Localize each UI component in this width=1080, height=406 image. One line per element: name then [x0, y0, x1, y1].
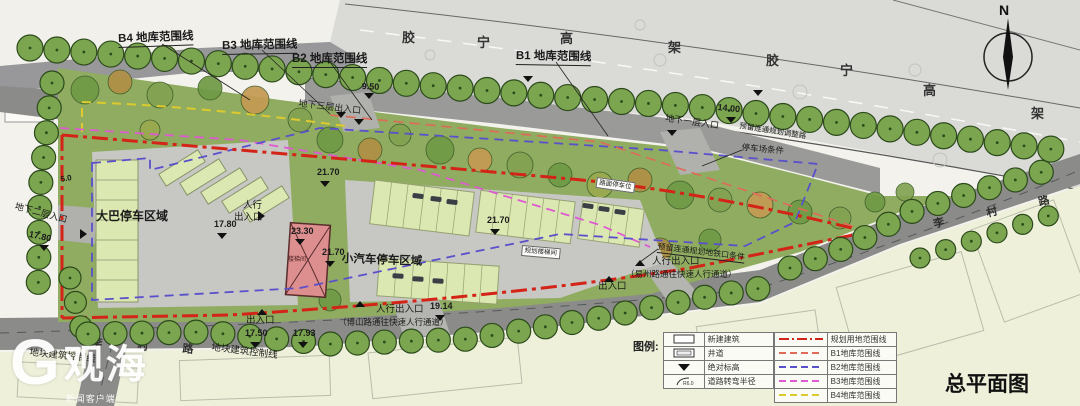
site-plan-page: 李村路李村路 胶宁高架胶宁高架 B4 地库范围线B3 地库范围线B2 地库范围线…	[0, 0, 1080, 406]
watermark-logo: G	[10, 332, 60, 393]
legend-line-row-3: B3地库范围线	[774, 375, 896, 389]
legend-line-sample-icon	[778, 350, 824, 356]
legend-line-row-2: B2地库范围线	[774, 361, 896, 375]
legend-line-label: 规划用地范围线	[827, 333, 896, 347]
watermark: G 观海 新闻客户端	[10, 332, 148, 405]
label-exit-left: 出入口	[246, 316, 275, 326]
label-elev-950: 9.50	[362, 82, 380, 92]
legend-line-sample-icon	[778, 392, 824, 398]
legend-symbol-row-3: R6.0道路转弯半径	[663, 375, 773, 389]
highway-name-char-6: 高	[923, 83, 936, 98]
svg-text:R6.0: R6.0	[683, 381, 694, 386]
label-ped-entry-1a: 人行	[243, 201, 262, 211]
label-elev-1914: 19.14	[430, 302, 453, 311]
highway-name-char-5: 宁	[840, 63, 853, 78]
new-building-rect-icon	[669, 334, 699, 344]
legend-line-label: B2地库范围线	[827, 361, 896, 375]
label-stair: 楼梯间	[288, 257, 306, 263]
shaft-rect-icon	[669, 348, 699, 358]
legend-line-label: B4地库范围线	[827, 389, 896, 403]
watermark-brand: 观海	[64, 343, 148, 387]
legend-symbol-label: 绝对标高	[704, 361, 773, 375]
legend-line-row-4: B4地库范围线	[774, 389, 896, 403]
legend-symbol-label: 新建建筑	[704, 333, 773, 347]
legend-symbol-row-2: 绝对标高	[663, 361, 773, 375]
label-elev-1750: 17.50	[245, 329, 268, 338]
highway-name-char-1: 宁	[477, 35, 490, 50]
label-ped-entry-3: 人行出入口	[376, 305, 424, 315]
legend-line-sample-icon	[778, 378, 824, 384]
legend-symbol-table: 新建建筑井道绝对标高R6.0道路转弯半径	[663, 332, 774, 389]
label-elev-2170c: 21.70	[487, 216, 510, 225]
highway-name-char-3: 架	[667, 40, 681, 55]
legend-line-sample-icon	[778, 364, 824, 370]
highway-name-char-0: 胶	[402, 30, 415, 45]
highway-name-char-4: 胶	[766, 53, 779, 68]
legend-line-row-0: 规划用地范围线	[774, 333, 896, 347]
legend-line-table: 规划用地范围线B1地库范围线B2地库范围线B3地库范围线B4地库范围线	[774, 332, 897, 403]
label-b3-range: B3 地库范围线	[222, 40, 298, 55]
label-b2-range: B2 地库范围线	[292, 54, 367, 68]
turn-radius-icon: R6.0	[669, 376, 699, 386]
label-ped-entry-1b: 出入口	[234, 213, 263, 223]
legend-title: 图例:	[633, 338, 659, 354]
legend-symbol-row-0: 新建建筑	[663, 333, 773, 347]
north-label: N	[999, 2, 1009, 18]
label-ped-entry-2: 人行出入口	[652, 257, 700, 267]
highway-name-char-2: 高	[560, 31, 573, 46]
highway-name-char-7: 架	[1030, 106, 1044, 121]
legend-line-label: B1地库范围线	[827, 347, 896, 361]
label-b4-range: B4 地库范围线	[118, 31, 194, 47]
label-elev-2170a: 21.70	[317, 168, 340, 177]
watermark-sub: 新闻客户端	[66, 392, 148, 405]
label-elev-1793: 17.93	[293, 329, 316, 338]
legend-symbol-label: 道路转弯半径	[704, 375, 773, 389]
label-exit-mid: 出入口	[598, 282, 627, 292]
legend: 图例: 新建建筑井道绝对标高R6.0道路转弯半径 规划用地范围线B1地库范围线B…	[633, 332, 897, 403]
label-bus-parking-area: 大巴停车区域	[96, 210, 168, 222]
legend-symbol-label: 井道	[704, 347, 773, 361]
legend-line-label: B3地库范围线	[827, 375, 896, 389]
label-ped-note-2: （易州路通往快速人行通道）	[626, 270, 737, 279]
legend-line-row-1: B1地库范围线	[774, 347, 896, 361]
triangle-down-icon	[669, 362, 699, 372]
legend-line-sample-icon	[778, 336, 824, 342]
page-title: 总平面图	[945, 368, 1029, 398]
label-b1-range: B1 地库范围线	[516, 51, 592, 66]
legend-symbol-row-1: 井道	[663, 347, 773, 361]
label-ped-note-3: （博山路通往快速人行通道）	[338, 318, 449, 327]
label-elev-2330: 23.30	[291, 227, 314, 236]
